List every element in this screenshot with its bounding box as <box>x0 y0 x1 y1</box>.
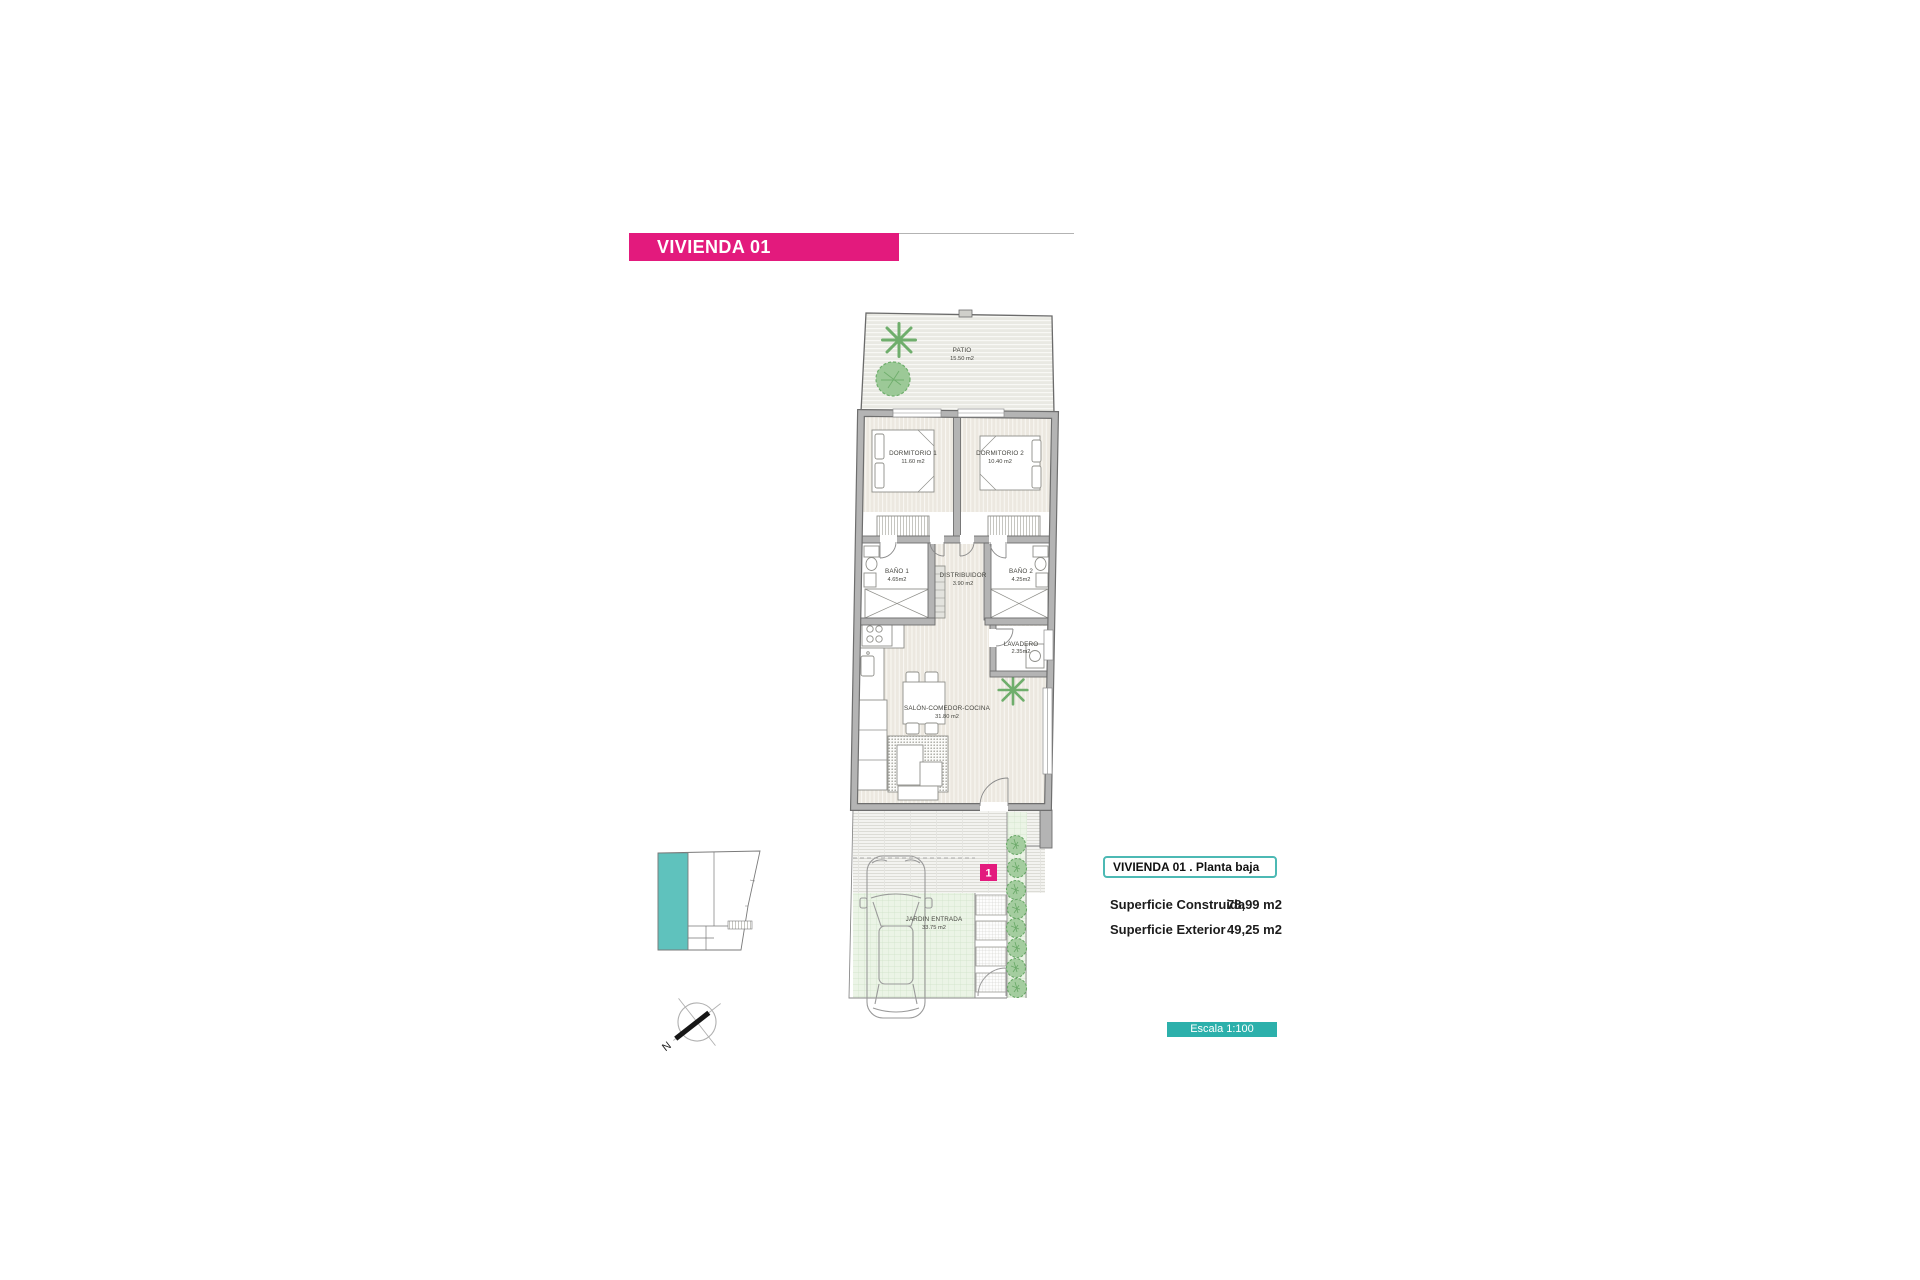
scale-badge: Escala 1:100 <box>1167 1022 1277 1037</box>
room-area-jardin: 33.75 m2 <box>922 925 946 931</box>
bush-plant-icon <box>876 362 910 396</box>
room-area-salon: 31.80 m2 <box>935 714 959 720</box>
salon-plant-icon <box>999 676 1028 705</box>
wardrobe-1 <box>877 516 929 536</box>
floor-plan-svg: 1 <box>600 250 1100 1070</box>
header-rule <box>899 233 1074 234</box>
unit-info-box: VIVIENDA 01 . Planta baja <box>1103 856 1277 878</box>
room-area-patio: 15.50 m2 <box>950 356 974 362</box>
wardrobe-2 <box>988 516 1040 536</box>
room-area-bano-2: 4.25m2 <box>1012 577 1031 583</box>
north-compass: N <box>645 980 739 1070</box>
surface-exterior-label: Superficie Exterior <box>1110 922 1226 937</box>
room-label-distribuidor: DISTRIBUIDOR <box>940 572 987 579</box>
room-area-distribuidor: 3.90 m2 <box>953 581 974 587</box>
north-label: N <box>660 1040 674 1054</box>
garden-area: 1 <box>849 810 1052 1018</box>
room-label-bano-1: BAÑO 1 <box>885 566 909 575</box>
room-label-dormitorio-1: DORMITORIO 1 <box>889 450 937 457</box>
page: { "header": { "title": "VIVIENDA 01" }, … <box>0 0 1920 1280</box>
planters <box>976 895 1006 992</box>
room-label-dormitorio-2: DORMITORIO 2 <box>976 450 1024 457</box>
surface-built-value: 78,99 m2 <box>1227 897 1282 912</box>
site-key-plan <box>658 851 760 950</box>
unit-number-label: 1 <box>985 868 991 880</box>
room-label-patio: PATIO <box>953 347 972 354</box>
room-area-dormitorio-1: 11.60 m2 <box>901 459 924 465</box>
unit-info-title: VIVIENDA 01 . Planta baja <box>1113 860 1259 874</box>
room-area-bano-1: 4.65m2 <box>888 577 907 583</box>
room-label-bano-2: BAÑO 2 <box>1009 566 1033 575</box>
room-area-lavadero: 2.35m2 <box>1012 649 1031 655</box>
room-label-jardin: JARDIN ENTRADA <box>906 916 963 923</box>
patio-gate <box>959 310 972 317</box>
room-area-dormitorio-2: 10.40 m2 <box>988 459 1012 465</box>
surface-built-label: Superficie Construida <box>1110 897 1245 912</box>
surface-exterior-value: 49,25 m2 <box>1227 922 1282 937</box>
room-label-lavadero: LAVADERO <box>1004 641 1039 648</box>
palm-plant-icon <box>883 324 916 357</box>
room-label-salon: SALÓN-COMEDOR-COCINA <box>904 703 991 712</box>
